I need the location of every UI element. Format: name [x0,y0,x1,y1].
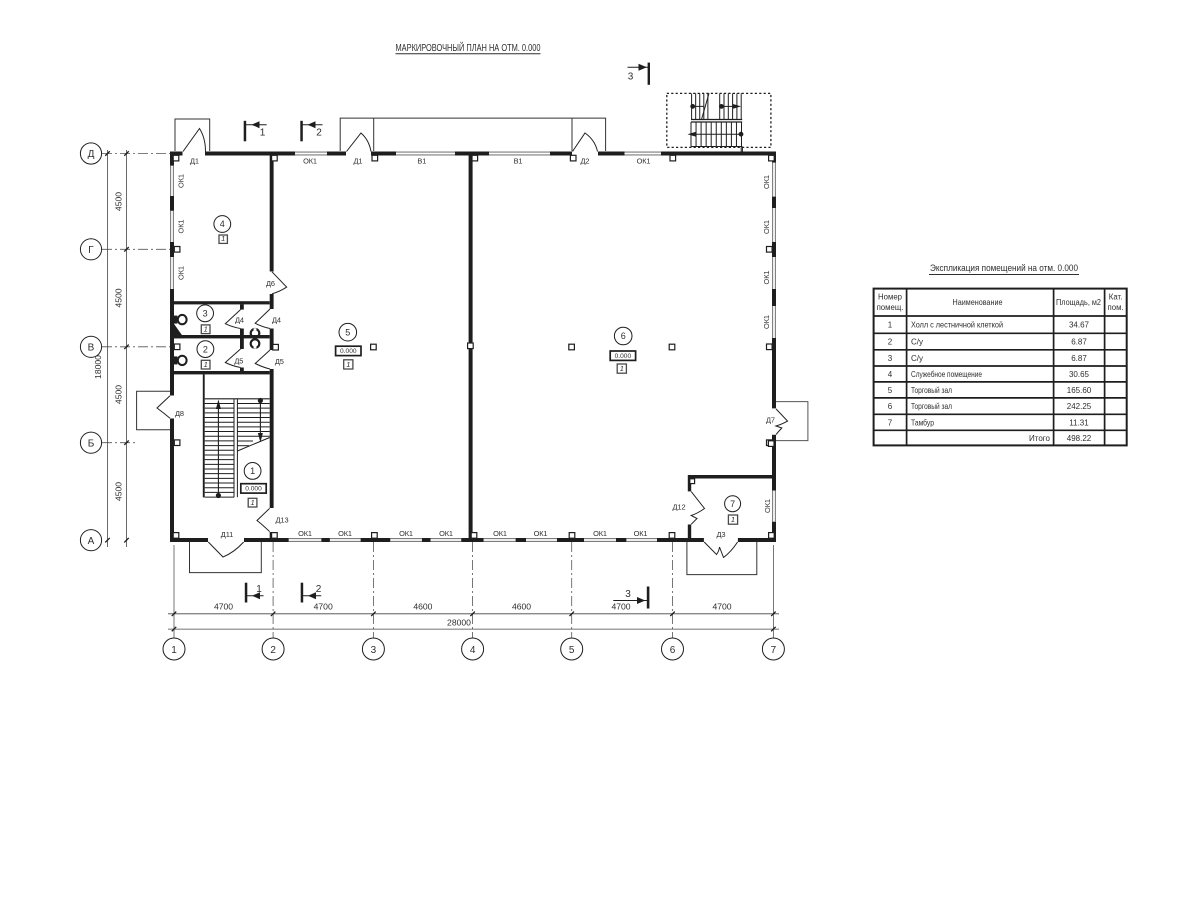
svg-text:7: 7 [888,418,893,427]
svg-text:18000: 18000 [93,355,103,379]
svg-text:6: 6 [670,645,676,656]
svg-text:С/у: С/у [911,338,923,347]
svg-text:0.000: 0.000 [340,348,357,355]
svg-text:30.65: 30.65 [1069,370,1090,379]
svg-text:4500: 4500 [114,385,124,404]
svg-text:ОК1: ОК1 [338,529,352,538]
svg-text:Д4: Д4 [235,316,244,325]
svg-text:Холл с лестничной клеткой: Холл с лестничной клеткой [911,321,1003,330]
svg-text:ОК1: ОК1 [634,529,648,538]
svg-text:Д1: Д1 [190,157,199,166]
svg-text:3: 3 [888,354,893,363]
svg-text:4: 4 [220,219,225,229]
svg-text:ОК1: ОК1 [439,529,453,538]
svg-text:11.31: 11.31 [1069,418,1089,427]
svg-text:1: 1 [171,645,177,656]
svg-text:ОК1: ОК1 [298,529,312,538]
svg-text:5: 5 [569,645,575,656]
svg-text:1: 1 [250,466,255,476]
svg-text:ОК1: ОК1 [177,266,186,280]
svg-text:6.87: 6.87 [1071,354,1087,363]
svg-text:3: 3 [371,645,377,656]
svg-text:Д1: Д1 [354,157,363,166]
svg-text:3: 3 [203,309,208,319]
svg-text:4700: 4700 [214,602,233,612]
svg-text:28000: 28000 [447,618,471,628]
svg-text:ОК1: ОК1 [763,499,772,513]
svg-text:2: 2 [316,584,322,595]
svg-text:4500: 4500 [114,192,124,211]
svg-text:Д7: Д7 [766,415,775,424]
svg-text:2: 2 [270,645,276,656]
svg-text:Кат.: Кат. [1109,293,1123,302]
svg-text:Д6: Д6 [266,279,275,288]
svg-text:Наименование: Наименование [953,298,1003,307]
svg-text:Д5: Д5 [234,356,243,365]
svg-text:3: 3 [625,589,631,600]
svg-text:6: 6 [888,402,893,411]
svg-text:1: 1 [250,498,254,507]
svg-text:1: 1 [221,234,225,243]
svg-text:Д12: Д12 [673,503,686,512]
svg-text:34.67: 34.67 [1069,321,1090,330]
svg-text:7: 7 [730,499,735,509]
svg-text:498.22: 498.22 [1067,434,1092,443]
svg-text:Итого: Итого [1029,434,1051,443]
svg-text:1: 1 [260,128,266,139]
svg-text:1: 1 [256,584,262,595]
svg-text:Торговый зал: Торговый зал [911,402,952,411]
svg-text:1: 1 [204,360,208,369]
svg-text:Тамбур: Тамбур [911,418,934,427]
svg-text:0.000: 0.000 [615,353,632,360]
svg-text:4700: 4700 [314,602,333,612]
svg-text:Экспликация помещений на отм.: Экспликация помещений на отм. 0.000 [930,263,1078,274]
svg-text:Б: Б [88,438,95,449]
svg-text:165.60: 165.60 [1067,386,1092,395]
svg-text:6: 6 [621,331,626,341]
svg-text:ОК1: ОК1 [177,220,186,234]
svg-text:А: А [88,536,95,547]
svg-text:4600: 4600 [512,602,531,612]
svg-text:3: 3 [628,72,634,83]
svg-text:1: 1 [620,364,624,373]
svg-text:1: 1 [346,360,350,369]
svg-text:Г: Г [88,245,94,256]
svg-text:ОК1: ОК1 [493,529,507,538]
svg-text:Номер: Номер [878,293,903,302]
svg-text:2: 2 [316,128,322,139]
svg-text:Д2: Д2 [581,157,590,166]
svg-text:1: 1 [731,515,735,524]
svg-text:4600: 4600 [413,602,432,612]
svg-text:4700: 4700 [611,602,630,612]
svg-text:МАРКИРОВОЧНЫЙ ПЛАН НА ОТМ. 0.0: МАРКИРОВОЧНЫЙ ПЛАН НА ОТМ. 0.000 [396,41,541,54]
svg-text:В1: В1 [514,157,523,166]
svg-text:Д13: Д13 [276,516,289,525]
svg-text:В1: В1 [417,157,426,166]
svg-text:Служебное помещение: Служебное помещение [911,370,982,379]
svg-text:пом.: пом. [1108,303,1124,312]
svg-text:Д4: Д4 [272,316,281,325]
svg-text:4700: 4700 [712,602,731,612]
svg-text:1: 1 [888,321,893,330]
svg-text:Д11: Д11 [221,530,233,539]
svg-text:Д3: Д3 [717,530,726,539]
svg-text:ОК1: ОК1 [762,220,771,234]
svg-text:Площадь, м2: Площадь, м2 [1056,298,1101,307]
svg-text:ОК1: ОК1 [177,174,186,188]
svg-text:4500: 4500 [114,288,124,307]
svg-text:ОК1: ОК1 [762,315,771,329]
svg-text:5: 5 [345,327,350,337]
svg-text:ОК1: ОК1 [303,157,317,166]
svg-text:2: 2 [203,344,208,354]
svg-text:0.000: 0.000 [245,486,262,493]
svg-text:Д5: Д5 [275,357,284,366]
svg-text:ОК1: ОК1 [762,175,771,189]
svg-text:5: 5 [888,386,893,395]
svg-text:242.25: 242.25 [1067,402,1092,411]
svg-text:Д8: Д8 [175,409,184,418]
svg-text:ОК1: ОК1 [399,529,413,538]
svg-text:4: 4 [888,370,893,379]
svg-text:ОК1: ОК1 [593,529,607,538]
svg-text:7: 7 [771,645,777,656]
svg-text:2: 2 [888,338,893,347]
svg-text:6.87: 6.87 [1071,338,1087,347]
svg-text:помещ.: помещ. [877,303,904,312]
svg-text:ОК1: ОК1 [534,529,548,538]
svg-text:ОК1: ОК1 [762,271,771,285]
svg-text:В: В [88,342,95,353]
svg-text:Д: Д [88,149,95,160]
svg-text:4500: 4500 [114,482,124,501]
svg-text:Торговый зал: Торговый зал [911,386,952,395]
svg-text:ОК1: ОК1 [637,157,651,166]
svg-text:4: 4 [470,645,476,656]
svg-text:1: 1 [204,324,208,333]
svg-text:С/у: С/у [911,354,923,363]
